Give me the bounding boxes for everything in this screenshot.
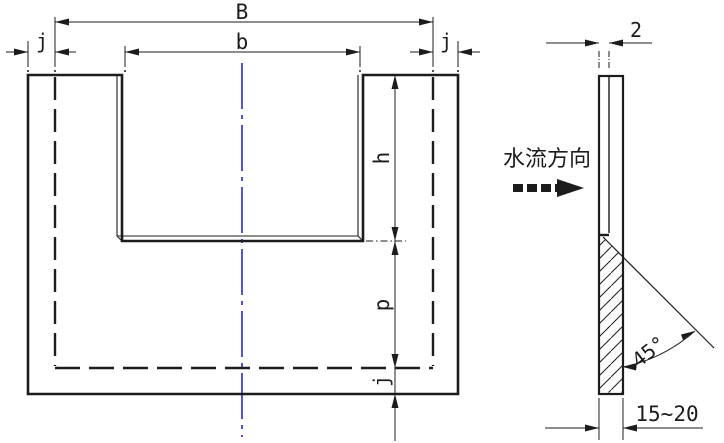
dim-label-p: p bbox=[370, 299, 394, 312]
dim-label-j-right: j bbox=[440, 29, 452, 53]
dimension-arrowheads bbox=[14, 19, 472, 409]
dim-label-15-20: 15~20 bbox=[635, 402, 698, 426]
weir-plate-drawing: B b j j h p j 2 水流方向 bbox=[0, 0, 724, 443]
hidden-embedment-lines bbox=[55, 77, 433, 368]
dim-label-B: B bbox=[236, 0, 249, 24]
dim-label-b: b bbox=[236, 30, 249, 54]
dim-label-j-bottom: j bbox=[369, 375, 393, 387]
plate-thickness-arrowheads bbox=[585, 425, 637, 432]
side-view: 2 水流方向 45° 15~20 bbox=[503, 18, 714, 440]
extension-line-dots bbox=[27, 70, 459, 72]
flow-direction-arrow-icon bbox=[513, 179, 584, 197]
dim-label-2: 2 bbox=[630, 18, 642, 42]
thickness-dimension bbox=[546, 43, 652, 68]
thickness-arrowheads bbox=[585, 40, 623, 47]
dimension-lines bbox=[6, 22, 480, 441]
dim-label-h: h bbox=[370, 152, 394, 165]
dim-label-j-left: j bbox=[36, 29, 48, 53]
front-view: B b j j h p j bbox=[6, 0, 480, 441]
notch-bevel-edge bbox=[117, 75, 363, 241]
drawing-canvas: B b j j h p j 2 水流方向 bbox=[0, 0, 724, 443]
flow-direction-label: 水流方向 bbox=[503, 146, 591, 171]
section-hatch bbox=[599, 237, 623, 393]
